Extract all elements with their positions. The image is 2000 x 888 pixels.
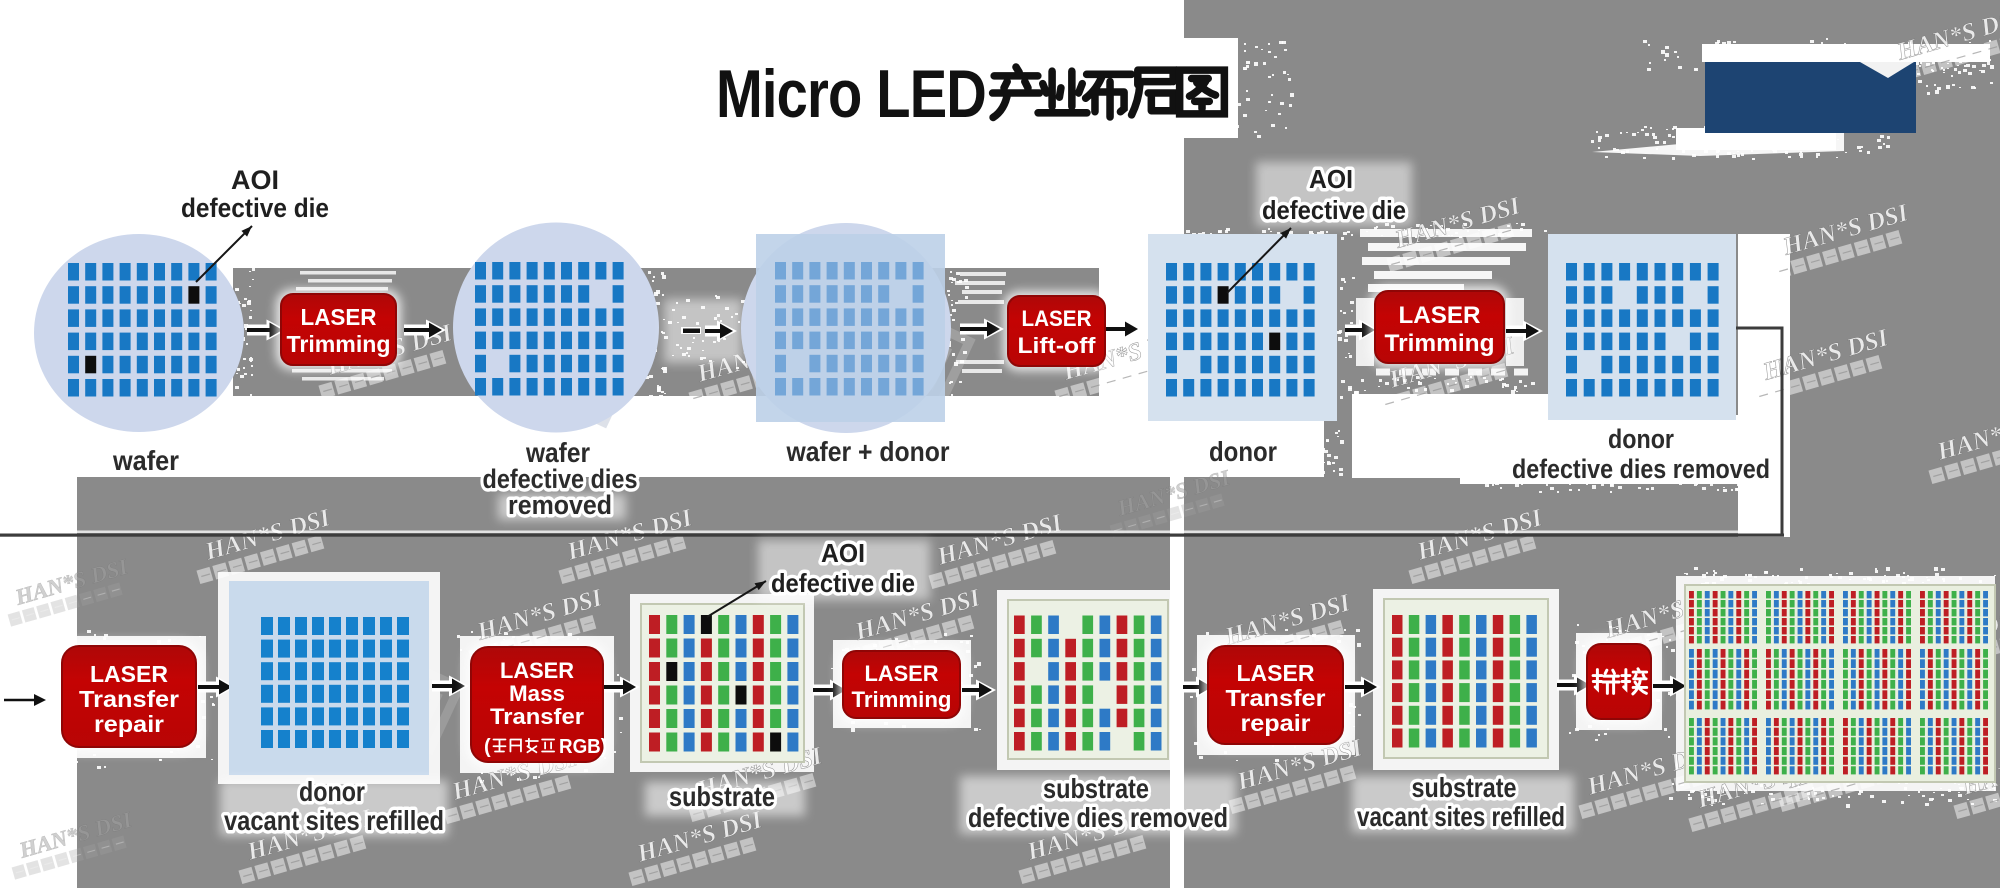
svg-text:LASER: LASER	[301, 304, 377, 330]
svg-text:Transfer: Transfer	[490, 704, 584, 729]
svg-text:Trimming: Trimming	[852, 687, 952, 712]
svg-text:substrate: substrate	[1043, 773, 1149, 804]
svg-text:(: (	[484, 736, 491, 758]
svg-text:Trimming: Trimming	[1385, 330, 1495, 357]
svg-text:repair: repair	[1241, 710, 1311, 736]
svg-text:defective dies removed: defective dies removed	[968, 802, 1228, 833]
svg-text:repair: repair	[94, 711, 164, 737]
svg-text:Trimming: Trimming	[287, 331, 391, 357]
svg-text:donor: donor	[1209, 436, 1277, 467]
svg-text:LASER: LASER	[500, 658, 574, 683]
svg-text:wafer: wafer	[112, 445, 179, 476]
svg-text:wafer + donor: wafer + donor	[786, 436, 950, 467]
svg-text:Mass: Mass	[509, 681, 565, 706]
svg-text:LASER: LASER	[1399, 302, 1481, 329]
svg-text:LASER: LASER	[1237, 660, 1315, 686]
svg-text:LASER: LASER	[1022, 306, 1092, 331]
svg-text:AOI: AOI	[821, 538, 865, 568]
svg-text:donor: donor	[299, 776, 365, 807]
svg-text:donor: donor	[1608, 424, 1674, 454]
svg-text:LASER: LASER	[90, 661, 168, 687]
svg-text:vacant sites refilled: vacant sites refilled	[1357, 801, 1565, 832]
svg-text:substrate: substrate	[669, 781, 775, 812]
svg-text:defective dies removed: defective dies removed	[1512, 454, 1770, 484]
svg-text:vacant sites refilled: vacant sites refilled	[224, 805, 444, 836]
svg-text:LASER: LASER	[865, 661, 939, 686]
svg-text:AOI: AOI	[231, 165, 279, 195]
svg-text:defective die: defective die	[1262, 195, 1406, 225]
svg-text:defective die: defective die	[771, 568, 915, 598]
svg-text:removed: removed	[508, 490, 612, 520]
svg-text:defective die: defective die	[181, 193, 329, 223]
svg-text:AOI: AOI	[1309, 164, 1353, 194]
svg-text:Lift-off: Lift-off	[1018, 333, 1097, 358]
svg-text:substrate: substrate	[1412, 772, 1517, 803]
svg-text:Transfer: Transfer	[1226, 685, 1326, 711]
svg-text:Micro LED: Micro LED	[716, 56, 986, 132]
svg-text:Transfer: Transfer	[79, 686, 179, 712]
svg-text:RGB): RGB)	[559, 736, 607, 758]
